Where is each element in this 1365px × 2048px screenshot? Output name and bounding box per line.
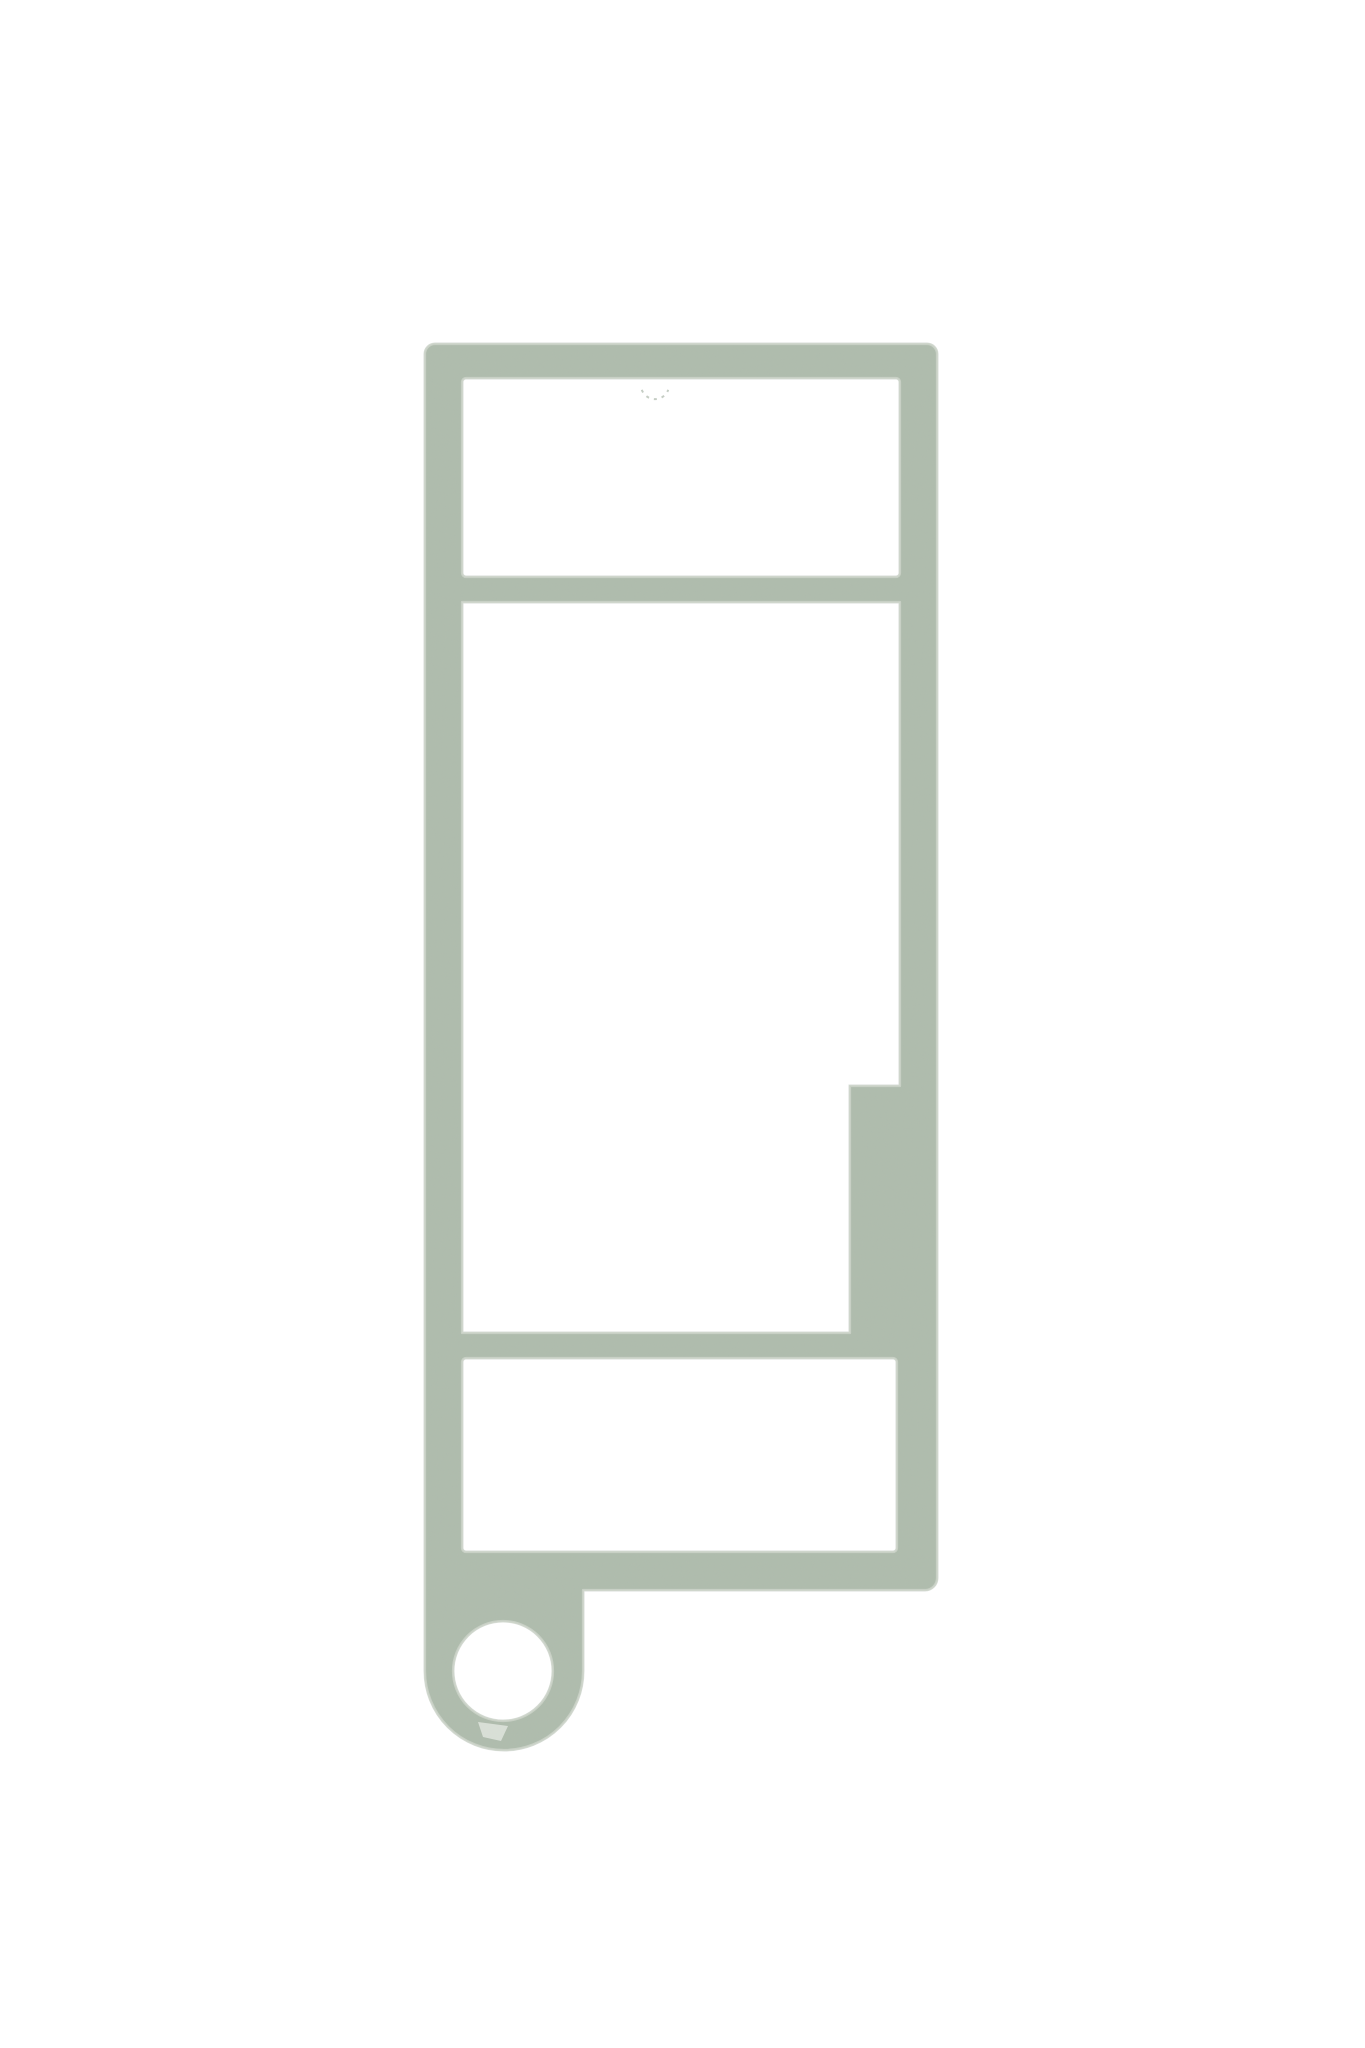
top-window-smudge-artifact (642, 390, 668, 399)
render-canvas (0, 0, 1365, 2048)
frame-edge-shadow (425, 344, 937, 1750)
render-viewport (0, 0, 1365, 2048)
keychain-frame-object (425, 344, 937, 1750)
frame-edge-highlight (425, 344, 937, 1750)
keychain-frame-shape (425, 344, 937, 1750)
